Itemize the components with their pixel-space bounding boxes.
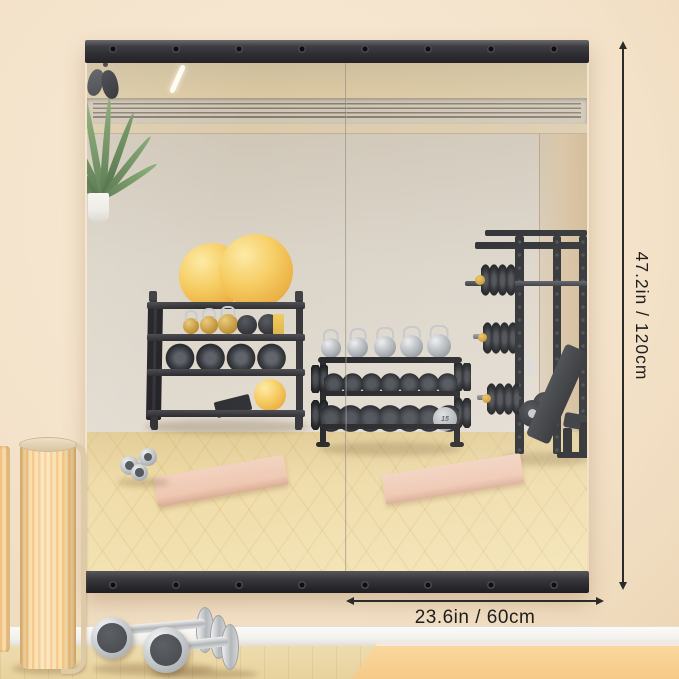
dumbbell-plate-edge [221,624,239,670]
width-dimension-line [348,600,602,602]
width-dimension-label: 23.6in / 60cm [346,607,604,629]
product-photo: 15 [0,0,679,679]
foreground-dumbbells [0,0,679,679]
arrow-down-icon [619,582,627,590]
dumbbell-plate [143,627,189,673]
arrow-left-icon [346,597,354,605]
arrow-up-icon [619,41,627,49]
width-dimension: 23.6in / 60cm [346,594,604,636]
height-dimension-label: 47.2in / 120cm [631,251,652,380]
arrow-right-icon [596,597,604,605]
dumbbell-plate [91,617,133,659]
height-dimension: 47.2in / 120cm [614,41,666,590]
height-dimension-line [622,43,624,588]
